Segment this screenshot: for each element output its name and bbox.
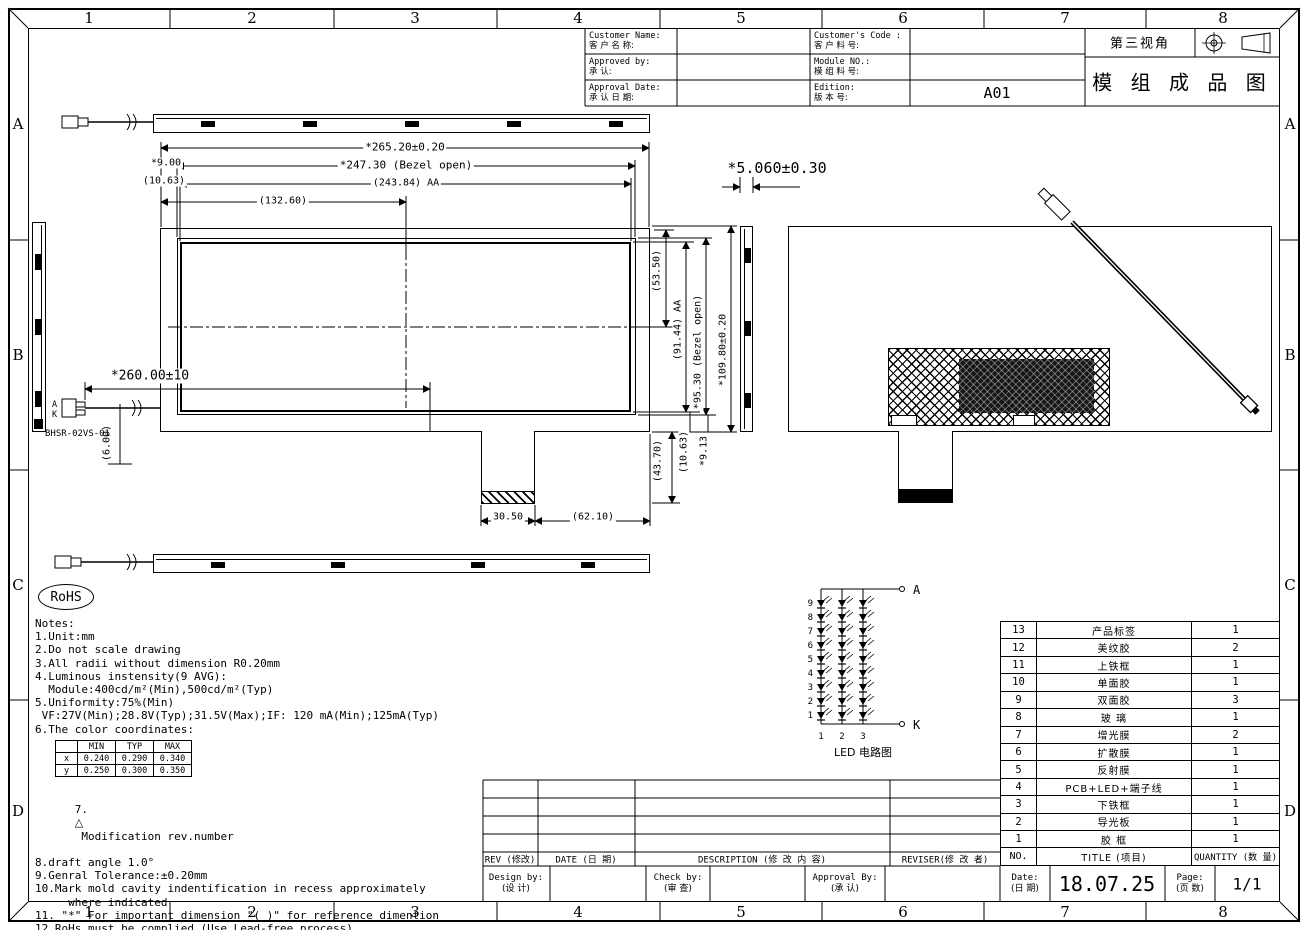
third-angle-projection-icon	[1200, 31, 1276, 55]
check-by-en: Check by:	[654, 873, 703, 884]
front-cable	[62, 399, 160, 417]
grid-row-label: D	[1284, 802, 1296, 820]
centerlines	[168, 247, 643, 408]
cathode-terminal-label: K	[913, 718, 921, 732]
module-no-label-en: Module NO.:	[814, 57, 870, 67]
color-table-cell: 0.290	[116, 753, 154, 765]
bom-header-no: NO.	[1001, 848, 1036, 864]
grid-col-label: 7	[1060, 9, 1070, 27]
led-col-label: 1	[818, 732, 823, 742]
bom-no: 1	[1001, 831, 1036, 847]
bom-qty: 1	[1191, 761, 1279, 777]
dim-aa-height: (91.44) AA	[673, 298, 684, 362]
bom-row: 3下铁框1	[1001, 795, 1279, 812]
page-cn: (页 数)	[1176, 884, 1204, 895]
rev-header-description: DESCRIPTION (修 改 内 容)	[698, 853, 826, 866]
bom-qty: 1	[1191, 831, 1279, 847]
grid-col-label: 8	[1218, 903, 1228, 921]
bom-title: 增光膜	[1036, 727, 1191, 743]
bom-no: 12	[1001, 639, 1036, 655]
dim-bezel-width: *247.30 (Bezel open)	[338, 159, 474, 172]
bom-title: 导光板	[1036, 814, 1191, 830]
edition-label-en: Edition:	[814, 83, 855, 93]
approval-date-label-en: Approval Date:	[589, 83, 661, 93]
grid-row-label: A	[1285, 115, 1296, 133]
led-row-label: 2	[808, 697, 813, 707]
note-line: 2.Do not scale drawing	[35, 643, 439, 656]
note-line: 6.The color coordinates:	[35, 723, 439, 736]
approved-by-label-en: Approved by:	[589, 57, 650, 67]
anode-terminal-label: A	[913, 583, 921, 597]
third-angle-label: 第三视角	[1110, 33, 1170, 52]
note-line-7: 7. △ Modification rev.number	[35, 790, 439, 856]
note7-text: Modification rev.number	[75, 830, 234, 843]
grid-row-label: C	[12, 576, 23, 594]
bom-title: 扩散膜	[1036, 744, 1191, 760]
note-line: 10.Mark mold cavity indentification in r…	[35, 882, 439, 895]
grid-col-label: 2	[247, 9, 257, 27]
rear-cable	[1037, 187, 1261, 416]
bom-row: 10单面胶1	[1001, 673, 1279, 690]
design-by-en: Design by:	[489, 873, 543, 884]
note-line: 5.Uniformity:75%(Min)	[35, 696, 439, 709]
connector-model-label: BHSR-02VS-01	[45, 429, 110, 439]
date-value: 18.07.25	[1059, 872, 1155, 896]
rev-header-date: DATE (日 期)	[555, 853, 616, 866]
customers-code-label-cn: 客 户 料 号:	[814, 41, 859, 51]
bom-table: 13产品标签1 12美纹胶2 11上铁框1 10单面胶1 9双面胶3 8玻 璃1…	[1000, 621, 1280, 866]
grid-col-label: 8	[1218, 9, 1228, 27]
dim-bezel-height: *95.30 (Bezel open)	[693, 293, 704, 411]
led-row-label: 9	[808, 599, 813, 609]
bom-row: 5反射膜1	[1001, 760, 1279, 777]
grid-row-label: A	[13, 115, 24, 133]
date-cn: (日 期)	[1011, 884, 1039, 895]
color-table-corner	[56, 741, 78, 753]
note-line: Module:400cd/m²(Min),500cd/m²(Typ)	[35, 683, 439, 696]
grid-col-label: 4	[573, 903, 583, 921]
color-table-header: TYP	[116, 741, 154, 753]
bom-title: 美纹胶	[1036, 639, 1191, 655]
color-table-cell: 0.240	[78, 753, 116, 765]
approval-by-label: Approval By: (承 认)	[812, 873, 877, 895]
bom-title: 上铁框	[1036, 657, 1191, 673]
bom-qty: 1	[1191, 657, 1279, 673]
bom-header-row: NO. TITLE (项目) QUANTITY (数 量)	[1001, 847, 1279, 864]
bom-qty: 1	[1191, 796, 1279, 812]
note-line: 4.Luminous instensity(9 AVG):	[35, 670, 439, 683]
note-line: 8.draft angle 1.0°	[35, 856, 439, 869]
bom-title: 产品标签	[1036, 622, 1191, 638]
note-line: 9.Genral Tolerance:±0.20mm	[35, 869, 439, 882]
page-value: 1/1	[1233, 875, 1262, 894]
led-circuit-diagram: 9 8 7 6 5 4 3 2 1 1 2 3 A K LED 电路图	[793, 578, 953, 768]
approval-by-en: Approval By:	[812, 873, 877, 884]
bom-no: 11	[1001, 657, 1036, 673]
led-row-label: 3	[808, 683, 813, 693]
bom-no: 3	[1001, 796, 1036, 812]
bom-qty: 1	[1191, 744, 1279, 760]
note-line: where indicated	[35, 896, 439, 909]
bom-title: 下铁框	[1036, 796, 1191, 812]
grid-col-label: 3	[410, 9, 420, 27]
bom-qty: 1	[1191, 622, 1279, 638]
dim-cable-length: *260.00±10	[109, 369, 191, 384]
notes-block-1: Notes: 1.Unit:mm 2.Do not scale drawing …	[35, 617, 439, 736]
bom-row: 12美纹胶2	[1001, 638, 1279, 655]
bom-row: 9双面胶3	[1001, 691, 1279, 708]
dim-thickness: *5.060±0.30	[725, 159, 828, 177]
bom-row: 4PCB+LED+端子线1	[1001, 778, 1279, 795]
customer-name-label-en: Customer Name:	[589, 31, 661, 41]
note7-prefix: 7.	[75, 803, 88, 816]
bom-qty: 2	[1191, 727, 1279, 743]
dim-overall-width: *265.20±0.20	[363, 141, 446, 154]
approval-by-cn: (承 认)	[812, 884, 877, 895]
grid-row-label: B	[12, 346, 23, 364]
bom-no: 4	[1001, 779, 1036, 795]
color-coordinates-table: MIN TYP MAX x 0.240 0.290 0.340 y 0.250 …	[55, 740, 192, 777]
bom-row: 2导光板1	[1001, 813, 1279, 830]
bom-qty: 1	[1191, 709, 1279, 725]
led-col-label: 2	[839, 732, 844, 742]
bom-title: 胶 框	[1036, 831, 1191, 847]
bom-row: 6扩散膜1	[1001, 743, 1279, 760]
grid-col-label: 5	[736, 9, 746, 27]
dim-half-width: (132.60)	[257, 196, 309, 207]
color-table-row-label: y	[56, 765, 78, 777]
color-table-cell: 0.300	[116, 765, 154, 777]
bom-title: 玻 璃	[1036, 709, 1191, 725]
edition-label-cn: 版 本 号:	[814, 93, 848, 103]
bom-no: 9	[1001, 692, 1036, 708]
bom-no: 6	[1001, 744, 1036, 760]
led-row-label: 7	[808, 627, 813, 637]
bom-row: 7增光膜2	[1001, 726, 1279, 743]
color-table-header: MIN	[78, 741, 116, 753]
color-table-cell: 0.350	[154, 765, 192, 777]
bom-qty: 1	[1191, 674, 1279, 690]
led-row-label: 4	[808, 669, 813, 679]
color-table-row-label: x	[56, 753, 78, 765]
bom-no: 8	[1001, 709, 1036, 725]
page-label: Page: (页 数)	[1176, 873, 1204, 895]
color-table-cell: 0.250	[78, 765, 116, 777]
dim-lower-43: (43.70)	[653, 438, 664, 484]
bom-no: 7	[1001, 727, 1036, 743]
bom-row: 13产品标签1	[1001, 622, 1279, 638]
grid-row-label: C	[1284, 576, 1295, 594]
note-line: 3.All radii without dimension R0.20mm	[35, 657, 439, 670]
bom-row: 8玻 璃1	[1001, 708, 1279, 725]
dim-left-offset2: (10.63)	[141, 176, 187, 187]
design-by-cn: (设 计)	[489, 884, 543, 895]
dim-right-53: (53.50)	[652, 248, 663, 294]
page-en: Page:	[1176, 873, 1204, 884]
led-row-label: 1	[808, 711, 813, 721]
bom-title: 单面胶	[1036, 674, 1191, 690]
bom-header-title: TITLE (项目)	[1036, 848, 1191, 864]
bom-title: 双面胶	[1036, 692, 1191, 708]
bom-no: 10	[1001, 674, 1036, 690]
dim-aa-width: (243.84) AA	[371, 178, 441, 189]
rev-header-reviser: REVISER(修 改 者)	[902, 853, 989, 866]
grid-col-label: 5	[736, 903, 746, 921]
led-circuit-caption: LED 电路图	[834, 746, 892, 759]
bom-qty: 3	[1191, 692, 1279, 708]
led-row-label: 8	[808, 613, 813, 623]
dim-lower-10: (10.63)	[679, 429, 690, 475]
bom-qty: 1	[1191, 814, 1279, 830]
color-table-header: MAX	[154, 741, 192, 753]
edition-value: A01	[983, 84, 1010, 102]
date-en: Date:	[1011, 873, 1039, 884]
rev-header-rev: REV (修改)	[485, 853, 536, 866]
top-view-cable	[62, 114, 153, 130]
bom-title: 反射膜	[1036, 761, 1191, 777]
drawing-title: 模 组 成 品 图	[1092, 67, 1271, 96]
grid-col-label: 6	[898, 9, 908, 27]
module-no-label-cn: 模 组 料 号:	[814, 67, 859, 77]
grid-col-label: 1	[84, 9, 94, 27]
note-line: 11. "*" For important dimension "( )" fo…	[35, 909, 439, 922]
bom-qty: 2	[1191, 639, 1279, 655]
date-label: Date: (日 期)	[1011, 873, 1039, 895]
led-row-label: 5	[808, 655, 813, 665]
approval-date-label-cn: 承 认 日 期:	[589, 93, 634, 103]
customers-code-label-en: Customer's Code :	[814, 31, 901, 41]
customer-name-label-cn: 客 户 名 称:	[589, 41, 634, 51]
bom-row: 11上铁框1	[1001, 656, 1279, 673]
notes-block-2: 7. △ Modification rev.number 8.draft ang…	[35, 790, 439, 930]
dim-tab-offset: (62.10)	[570, 512, 616, 523]
design-by-label: Design by: (设 计)	[489, 873, 543, 895]
dim-tab-width: 30.50	[491, 512, 525, 523]
grid-row-label: D	[12, 802, 24, 820]
check-by-label: Check by: (审 查)	[654, 873, 703, 895]
bom-header-qty: QUANTITY (数 量)	[1191, 848, 1279, 864]
cathode-label: K	[52, 410, 57, 420]
drawing-sheet: 9 8 7 6 5 4 3 2 1 1 2 3 A K LED 电路图 1 2 …	[0, 0, 1308, 930]
note-line: 1.Unit:mm	[35, 630, 439, 643]
note-line: 12.RoHs must be complied.(Use Lead-free …	[35, 922, 439, 930]
bom-qty: 1	[1191, 779, 1279, 795]
led-row-label: 6	[808, 641, 813, 651]
cable-dims	[85, 382, 430, 464]
bom-row: 1胶 框1	[1001, 830, 1279, 847]
bom-title: PCB+LED+端子线	[1036, 779, 1191, 795]
bom-no: 5	[1001, 761, 1036, 777]
led-col-label: 3	[860, 732, 865, 742]
approved-by-label-cn: 承 认:	[589, 67, 612, 77]
rohs-badge: RoHS	[38, 584, 94, 610]
check-by-cn: (审 查)	[654, 884, 703, 895]
bom-no: 13	[1001, 622, 1036, 638]
bottom-view-cable	[55, 554, 153, 570]
note-line: VF:27V(Min);28.8V(Typ);31.5V(Max);IF: 12…	[35, 709, 439, 722]
bom-no: 2	[1001, 814, 1036, 830]
anode-label: A	[52, 400, 57, 410]
revision-triangle-icon: △	[75, 816, 83, 829]
notes-heading: Notes:	[35, 617, 439, 630]
color-table-cell: 0.340	[154, 753, 192, 765]
grid-col-label: 4	[573, 9, 583, 27]
dim-left-offset: *9.00	[149, 158, 183, 169]
dim-overall-height: *109.80±0.20	[718, 312, 729, 388]
dim-lower-9: *9.13	[699, 434, 710, 468]
grid-col-label: 7	[1060, 903, 1070, 921]
grid-row-label: B	[1284, 346, 1295, 364]
grid-col-label: 6	[898, 903, 908, 921]
